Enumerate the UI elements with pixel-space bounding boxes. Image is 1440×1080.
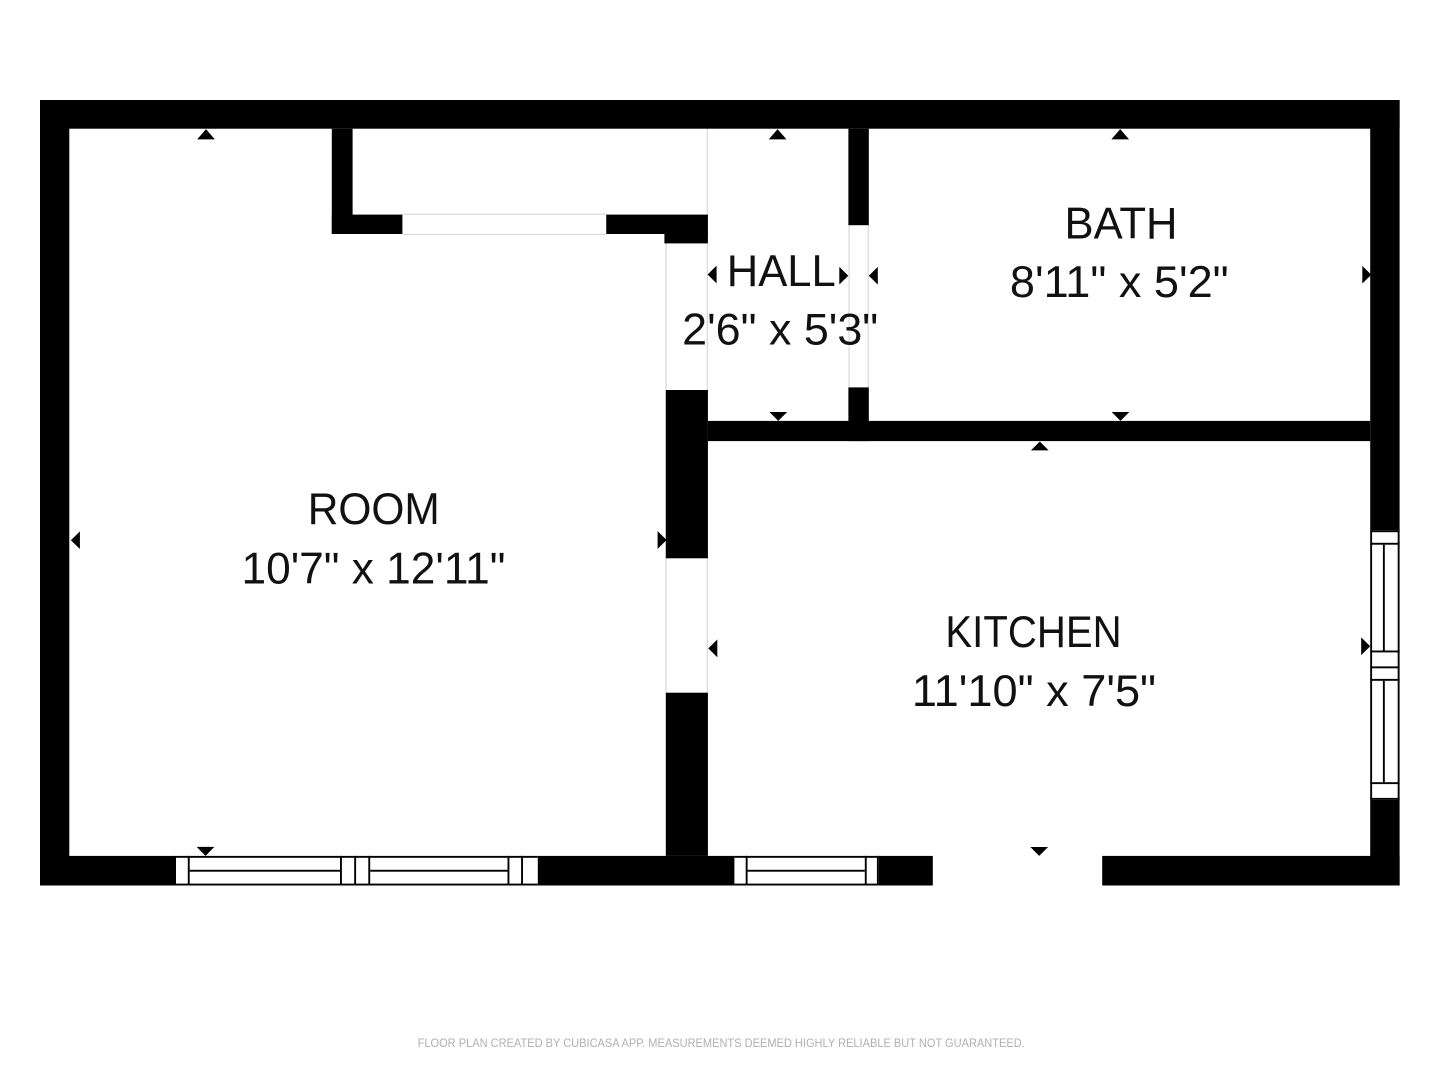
svg-text:11'10" x 7'5": 11'10" x 7'5" [912, 667, 1156, 716]
svg-text:2'6" x 5'3": 2'6" x 5'3" [682, 306, 878, 355]
svg-text:FLOOR PLAN CREATED BY CUBICASA: FLOOR PLAN CREATED BY CUBICASA APP. MEAS… [418, 1037, 1025, 1050]
svg-text:ROOM: ROOM [308, 485, 440, 534]
svg-text:8'11" x 5'2": 8'11" x 5'2" [1010, 258, 1229, 307]
svg-text:HALL: HALL [727, 247, 836, 296]
svg-text:BATH: BATH [1065, 200, 1178, 249]
svg-text:10'7" x 12'11": 10'7" x 12'11" [242, 544, 506, 593]
svg-text:KITCHEN: KITCHEN [945, 608, 1121, 657]
